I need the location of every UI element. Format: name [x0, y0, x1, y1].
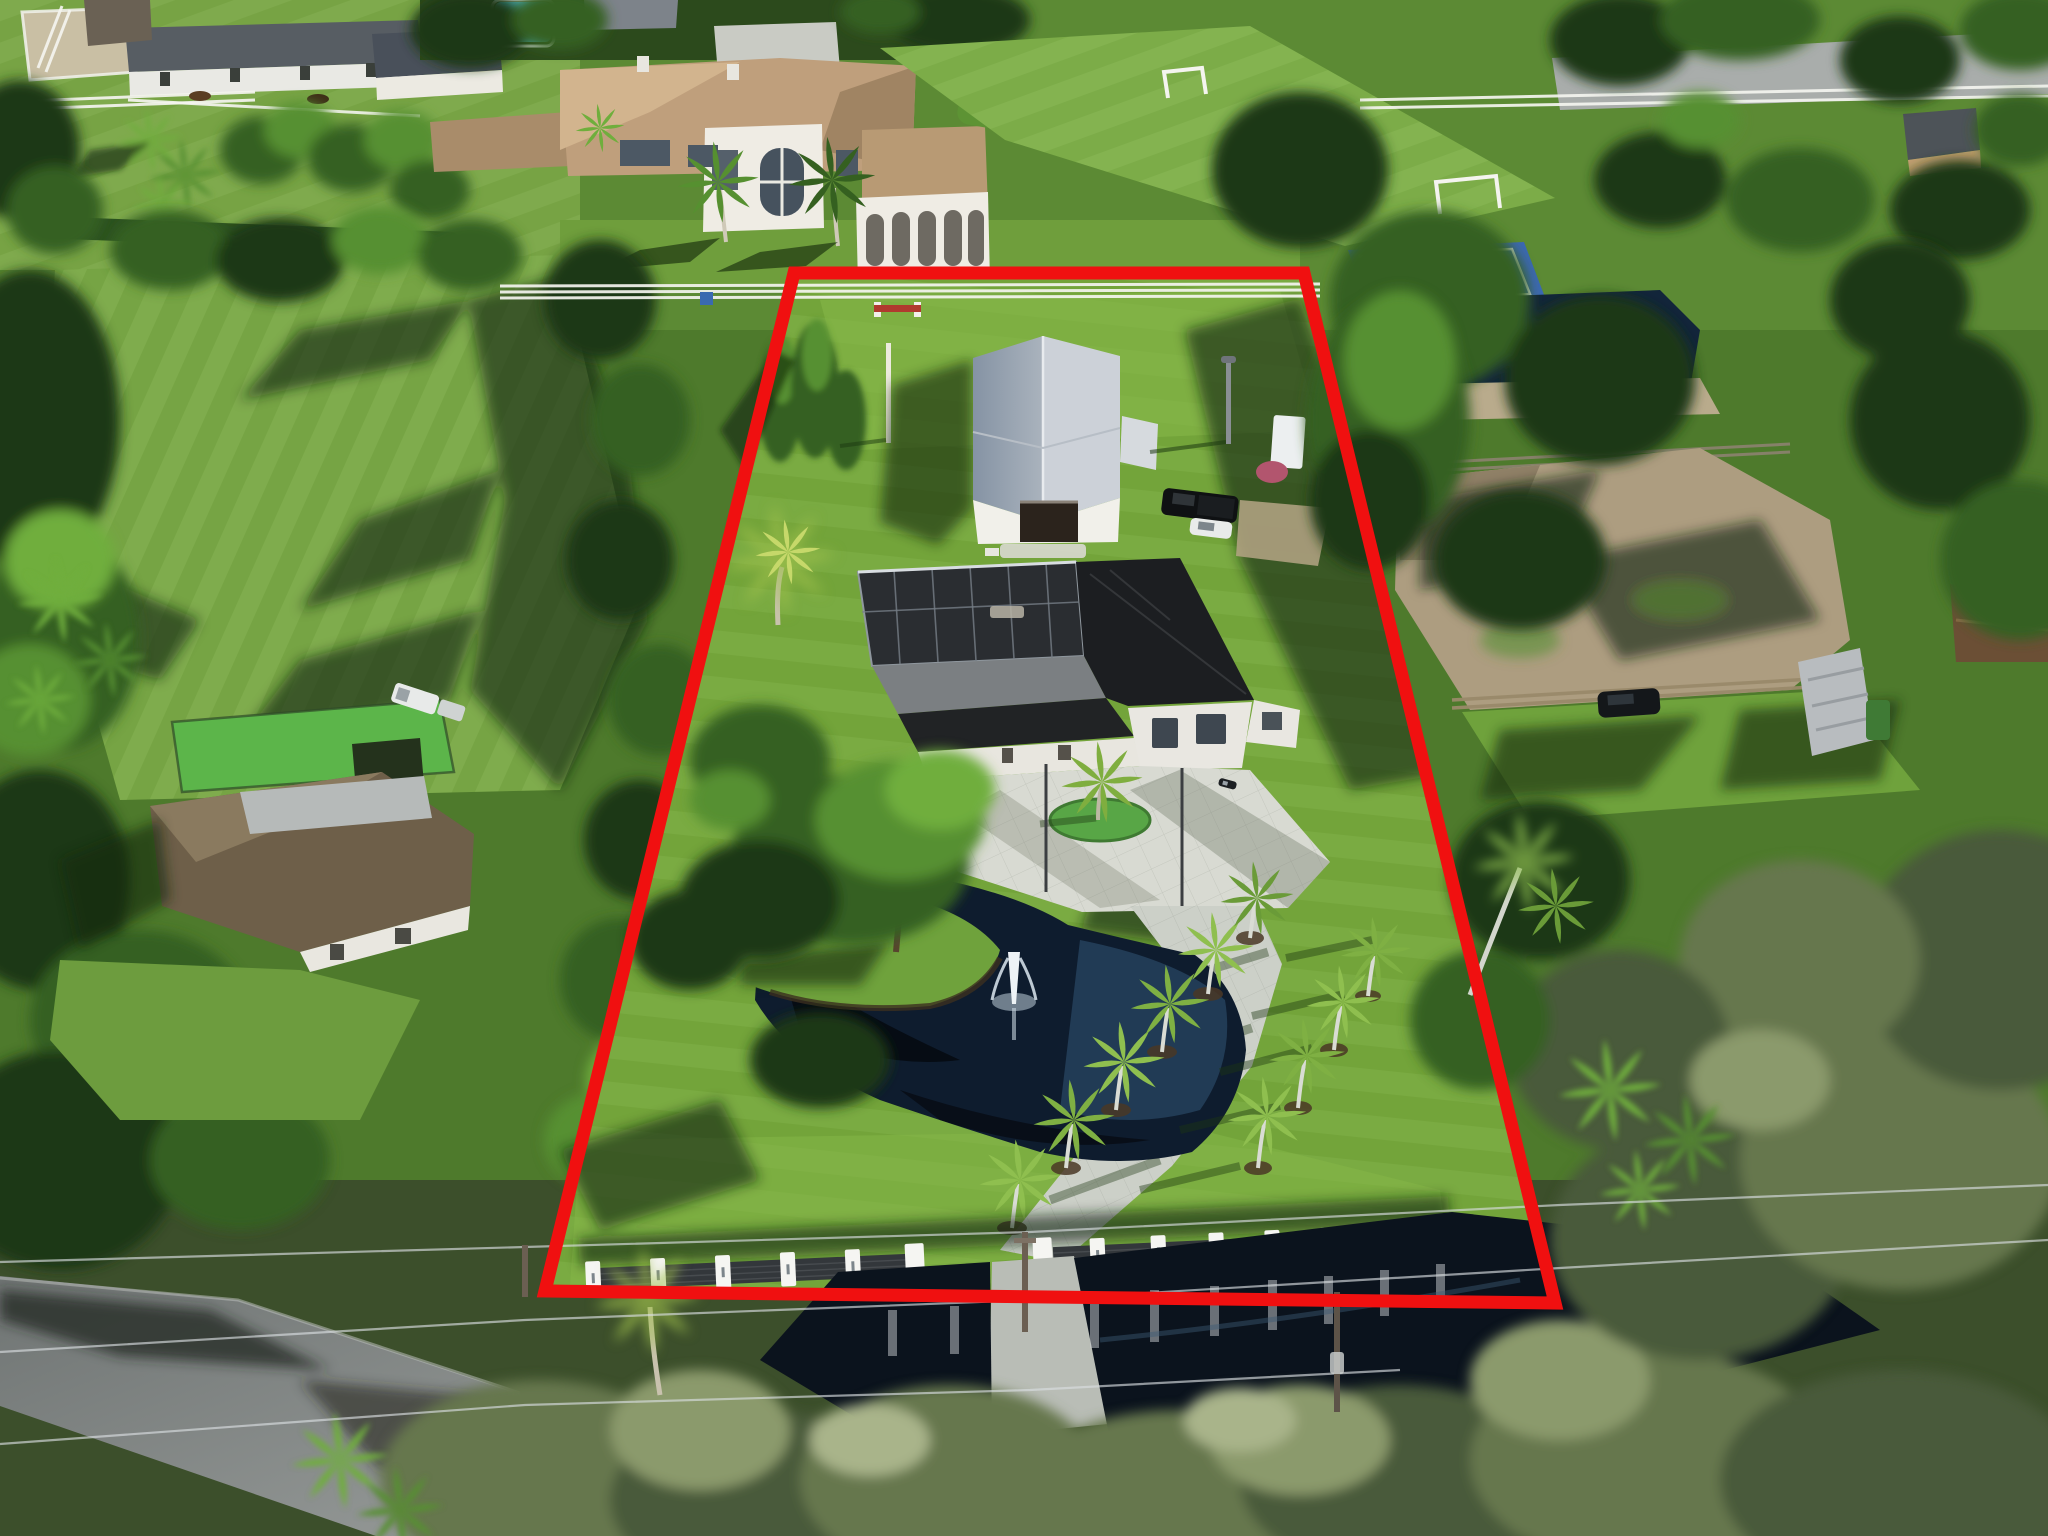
aerial-photo-canvas [0, 0, 2048, 1536]
bougainvillea [1256, 461, 1288, 483]
barn-door-open [1020, 502, 1078, 542]
horse [189, 91, 211, 101]
dark-suv [1597, 688, 1661, 718]
house-gable [1128, 702, 1252, 770]
pool-screen-enclosure [858, 562, 1084, 666]
barn-roof-east [1043, 336, 1120, 522]
horse [307, 94, 329, 104]
barn-pad [1000, 544, 1086, 558]
white-trailer-shed [1270, 415, 1306, 469]
green-equipment [1866, 700, 1890, 740]
farm-shed [84, 0, 152, 46]
aerial-photo [0, 0, 2048, 1536]
barn-roof-west [973, 336, 1043, 522]
barn-leanto [1120, 416, 1158, 470]
blue-tarp [700, 292, 713, 305]
